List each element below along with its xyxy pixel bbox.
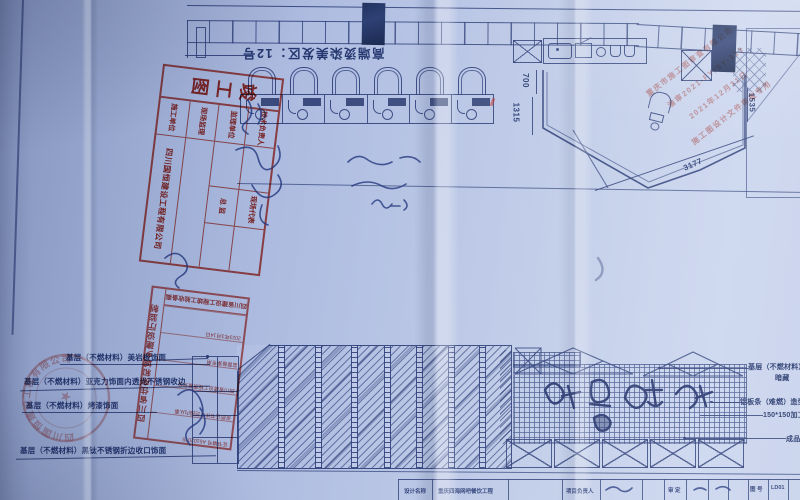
handwritten-signatures [0,0,800,500]
photographed-blueprint-sheet: 高端烫染美发区：12号 700 1315 [0,0,800,500]
